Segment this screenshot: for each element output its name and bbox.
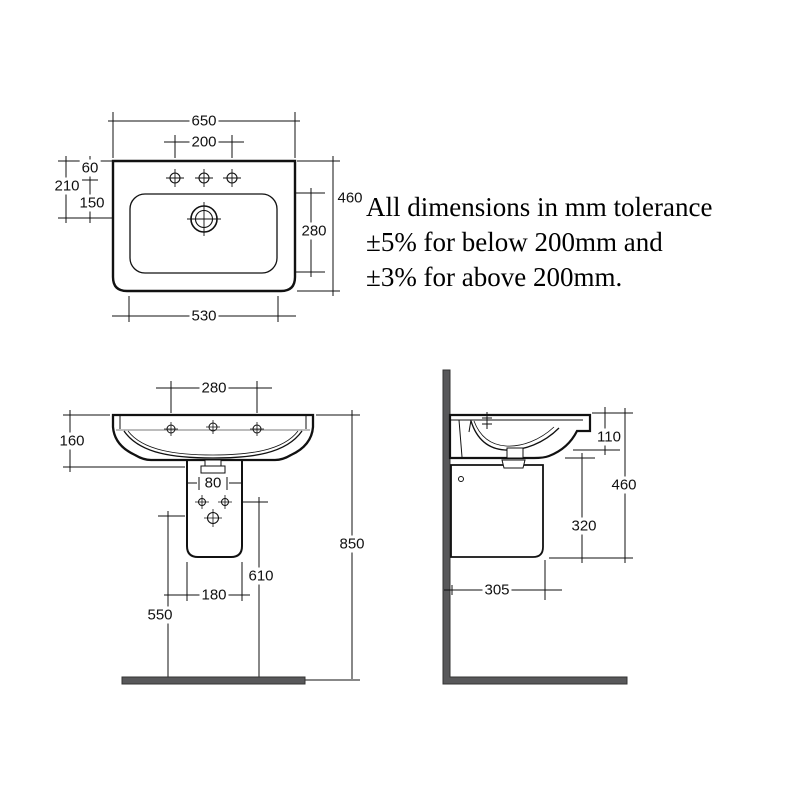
- tolerance-note-line1: All dimensions in mm tolerance: [366, 190, 776, 225]
- dim-label-top-bowl-depth: 280: [299, 223, 328, 240]
- dim-label-top-edge-to-taps: 60: [80, 160, 101, 177]
- dimension-labels: 650 200 60 210 150 460 280 530 280 160 8…: [0, 0, 800, 800]
- dim-label-side-projection: 305: [482, 582, 511, 599]
- technical-drawing-page: 650 200 60 210 150 460 280 530 280 160 8…: [0, 0, 800, 800]
- dim-label-top-overall-depth: 460: [335, 190, 364, 207]
- dim-label-top-overall-width: 650: [189, 113, 218, 130]
- tolerance-note: All dimensions in mm tolerance ±5% for b…: [366, 190, 776, 295]
- dim-label-top-bowl-width: 530: [189, 308, 218, 325]
- dim-label-top-edge-to-drain: 210: [52, 178, 81, 195]
- dim-label-top-taps-to-drain: 150: [77, 195, 106, 212]
- dim-label-front-floor-to-fixings: 610: [246, 568, 275, 585]
- dim-label-front-outer-taps: 280: [199, 380, 228, 397]
- tolerance-note-line3: ±3% for above 200mm.: [366, 260, 776, 295]
- dim-label-side-basin-to-pedestal: 460: [609, 477, 638, 494]
- dim-label-side-pedestal-height: 320: [569, 518, 598, 535]
- dim-label-front-floor-to-lower: 550: [145, 607, 174, 624]
- dim-label-front-fixing-spacing: 80: [203, 475, 224, 492]
- dim-label-top-tap-spacing: 200: [189, 134, 218, 151]
- dim-label-side-front-edge-height: 110: [595, 429, 623, 446]
- dim-label-front-pedestal-width: 180: [199, 587, 228, 604]
- dim-label-front-overall-height: 850: [337, 536, 366, 553]
- dim-label-front-basin-height: 160: [57, 433, 86, 450]
- tolerance-note-line2: ±5% for below 200mm and: [366, 225, 776, 260]
